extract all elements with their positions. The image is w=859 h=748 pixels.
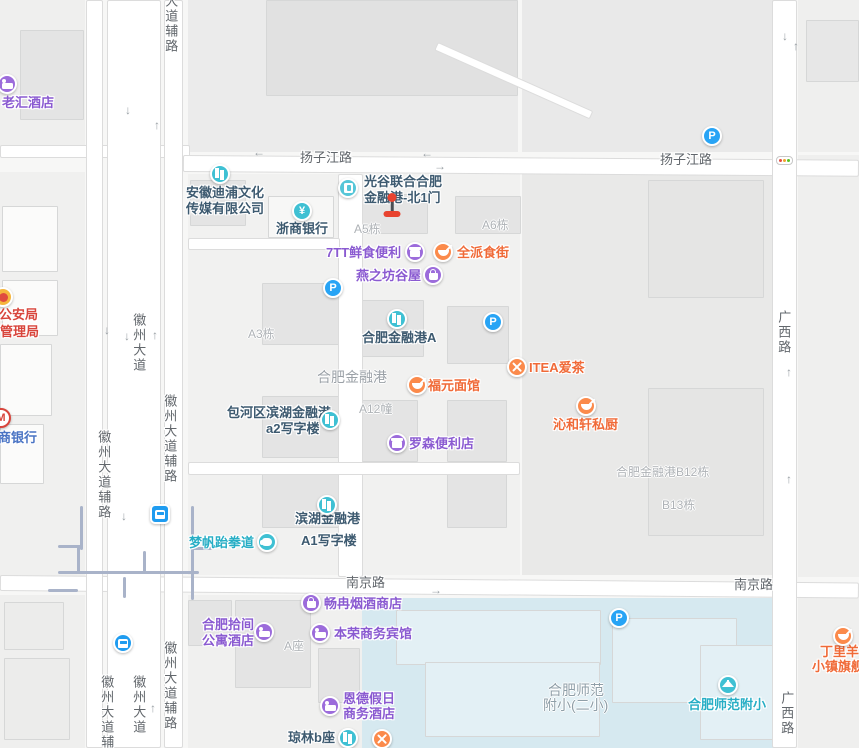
dipu-media-label[interactable]: 传媒有限公司 (186, 202, 264, 217)
building (4, 658, 70, 740)
mengfan-taekwondo-icon[interactable] (257, 532, 277, 552)
finance-port-a-label[interactable]: 合肥金融港A (362, 331, 436, 346)
road-label: 徽州大道辅路 (162, 394, 176, 484)
zheshang-bank-label[interactable]: 浙商银行 (276, 222, 328, 237)
door-glyph (344, 183, 353, 193)
metro-line (143, 551, 146, 573)
map-canvas[interactable]: ↓↑←←→↓↑↓↓↑↑↑↑↓→扬子江路扬子江路南京路南京路徽州大道徽州大道徽州大… (0, 0, 859, 748)
bed-glyph (2, 83, 13, 89)
bus-glyph (118, 639, 128, 648)
road-label: 徽州大道辅路 (99, 675, 113, 748)
building (648, 388, 764, 536)
metro-line (123, 577, 126, 598)
food-glyph (438, 250, 449, 256)
road-label: 扬子江路 (660, 153, 712, 167)
a1-office-label[interactable]: A1写字楼 (301, 534, 357, 549)
finance-port-north-gate1-label[interactable]: 光谷联合合肥 (364, 175, 442, 190)
bowl-glyph (581, 404, 592, 410)
fuyuan-noodle-icon[interactable] (407, 375, 427, 395)
city-block (798, 155, 859, 577)
metro-line (191, 506, 194, 600)
7tt-store-icon[interactable] (405, 242, 425, 262)
marker-gate-bar (384, 211, 401, 217)
direction-arrow: ↓ (782, 30, 788, 42)
finance-port-north-gate1-label[interactable]: 金融港-北1门 (364, 191, 441, 206)
a2-office-label[interactable]: 包河区滨湖金融港 (227, 406, 331, 421)
parking-icon[interactable]: P (702, 126, 722, 146)
road-label: 扬子江路 (300, 151, 352, 165)
city-block (522, 0, 774, 152)
building-label: 合肥金融港B12栋 (616, 463, 709, 480)
metro-line (48, 589, 78, 592)
direction-arrow: ← (253, 146, 265, 158)
lawson-icon[interactable] (387, 433, 407, 453)
road (188, 462, 520, 475)
restaurant-unnamed-icon[interactable] (372, 729, 392, 748)
bag-glyph (429, 273, 438, 280)
ende-holiday-hotel-label[interactable]: 商务酒店 (343, 707, 395, 722)
parking-icon[interactable]: P (483, 312, 503, 332)
shop-glyph (410, 250, 420, 257)
yen-glyph: ¥ (299, 206, 305, 217)
bldg-glyph (392, 313, 396, 323)
bowl-glyph (838, 634, 849, 640)
yanzhifang-label[interactable]: 燕之坊谷屋 (356, 269, 421, 284)
fist-glyph (262, 538, 272, 546)
road-label: 广西路 (776, 310, 790, 355)
itea-label[interactable]: ITEA爱茶 (529, 361, 585, 376)
parking-icon[interactable]: P (323, 278, 343, 298)
road (188, 238, 340, 250)
shijian-apartment-hotel-icon[interactable] (254, 622, 274, 642)
emblem-glyph (0, 293, 8, 302)
road-label: 徽州大道 (131, 313, 145, 373)
dipu-media-label[interactable]: 安徽迪浦文化 (186, 186, 264, 201)
building (447, 400, 507, 462)
dingliyang-label[interactable]: 小镇旗舰 (812, 660, 859, 675)
bowl-glyph (412, 383, 423, 389)
road (86, 0, 103, 748)
road-label: 大道辅路 (163, 0, 177, 54)
building (266, 0, 518, 96)
building-label: A3栋 (248, 325, 275, 342)
building (396, 610, 601, 665)
dingliyang-label[interactable]: 丁里羊 (820, 645, 859, 660)
building-label: A5栋 (354, 220, 381, 237)
selected-gate-marker[interactable] (383, 193, 401, 219)
building (447, 468, 507, 528)
bed-glyph (315, 632, 326, 638)
finance-port-a-icon[interactable] (387, 309, 407, 329)
a2-office-icon[interactable] (320, 410, 340, 430)
dingliyang-icon[interactable] (833, 626, 853, 646)
building (648, 180, 764, 298)
building-label: A12幢 (359, 400, 392, 417)
direction-arrow: → (434, 160, 446, 172)
qionglin-b-label[interactable]: 琼林b座 (288, 731, 335, 746)
qinhexuan-icon[interactable] (576, 396, 596, 416)
ende-holiday-hotel-icon[interactable] (320, 696, 340, 716)
road (164, 0, 183, 748)
ut-glyph (511, 361, 523, 373)
bldg-glyph (215, 168, 219, 178)
7tt-store-label[interactable]: 7TT鲜食便利 (326, 246, 401, 261)
building-label: B13栋 (662, 496, 695, 513)
mengfan-taekwondo-label[interactable]: 梦帆跆拳道 (189, 536, 254, 551)
road-label: 徽州大道辅路 (162, 641, 176, 731)
shop-glyph (392, 441, 402, 448)
lawson-label[interactable]: 罗森便利店 (409, 437, 474, 452)
direction-arrow: ↑ (786, 473, 792, 485)
bag-glyph (307, 601, 316, 608)
road-label: 徽州大道辅路 (96, 430, 110, 520)
road-label: 广西路 (779, 691, 793, 736)
direction-arrow: ↓ (104, 324, 110, 336)
traffic-light-icon (776, 156, 793, 165)
direction-arrow: ↓ (124, 330, 130, 342)
direction-arrow: ↑ (150, 702, 156, 714)
a1-office-icon[interactable] (317, 495, 337, 515)
direction-arrow: ↓ (121, 510, 127, 522)
marker-dot (388, 193, 397, 202)
ende-holiday-hotel-label[interactable]: 恩德假日 (343, 692, 395, 707)
dipu-media-icon[interactable] (210, 164, 230, 184)
shijian-apartment-hotel-label[interactable]: 合肥拾间 (202, 618, 254, 633)
road (772, 0, 797, 748)
quanpai-food-street-label[interactable]: 全派食街 (457, 246, 509, 261)
quanpai-food-street-icon[interactable] (433, 242, 453, 262)
metro-entrance-icon[interactable] (150, 504, 170, 524)
mbank-glyph: M (0, 413, 6, 424)
bed-glyph (325, 705, 336, 711)
yanzhifang-icon[interactable] (423, 265, 443, 285)
building-label: A6栋 (482, 216, 509, 233)
direction-arrow: ↑ (154, 119, 160, 131)
zheshang-bank-icon[interactable]: ¥ (292, 201, 312, 221)
bus-stop-icon[interactable] (113, 633, 133, 653)
qinhexuan-label[interactable]: 沁和轩私厨 (553, 418, 618, 433)
itea-icon[interactable] (507, 357, 527, 377)
metro-line (80, 506, 83, 550)
road-label: 南京路 (734, 578, 773, 592)
merchants-bank-label[interactable]: 商银行 (0, 431, 37, 446)
fuyuan-noodle-label[interactable]: 福元面馆 (428, 379, 480, 394)
direction-arrow: → (430, 584, 442, 596)
laohui-hotel-label[interactable]: 老汇酒店 (2, 96, 54, 111)
changran-tobacco-label[interactable]: 畅冉烟酒商店 (324, 597, 402, 612)
building (2, 206, 58, 272)
parking-glyph: P (489, 317, 496, 328)
ut-glyph (376, 733, 388, 745)
building-label: A座 (284, 637, 304, 654)
direction-arrow: ↓ (125, 104, 131, 116)
building-label: 合肥金融港 (317, 367, 387, 387)
bus-glyph (155, 510, 165, 519)
normal-primary-school-label[interactable]: 合肥师范附小 (688, 698, 766, 713)
building (806, 20, 859, 82)
school-glyph (722, 680, 734, 687)
shijian-apartment-hotel-label[interactable]: 公寓酒店 (202, 634, 254, 649)
changran-tobacco-icon[interactable] (301, 593, 321, 613)
building (0, 344, 52, 416)
bldg-glyph (322, 499, 326, 509)
bldg-glyph (343, 732, 347, 742)
building (4, 602, 64, 650)
finance-port-north-gate1-icon[interactable] (338, 178, 358, 198)
police-bureau-label[interactable]: 市公安局 (0, 308, 38, 323)
metro-line (58, 571, 199, 574)
a2-office-label[interactable]: a2写字楼 (266, 422, 319, 437)
parking-glyph: P (615, 613, 622, 624)
parking-icon[interactable]: P (609, 608, 629, 628)
qionglin-b-icon[interactable] (338, 728, 358, 748)
parking-glyph: P (329, 283, 336, 294)
direction-arrow: ↑ (793, 40, 799, 52)
benrong-hotel-label[interactable]: 本荣商务宾馆 (334, 627, 412, 642)
bldg-glyph (325, 414, 329, 424)
benrong-hotel-icon[interactable] (310, 623, 330, 643)
direction-arrow: ↑ (786, 366, 792, 378)
direction-arrow: ↑ (152, 329, 158, 341)
direction-arrow: ← (421, 147, 433, 159)
parking-glyph: P (708, 131, 715, 142)
building-label: 附小(二小) (543, 695, 608, 715)
metro-line (77, 547, 80, 574)
road-label: 南京路 (346, 576, 385, 590)
police-bureau-label[interactable]: 管理局 (0, 325, 39, 340)
normal-primary-school-icon[interactable] (718, 675, 738, 695)
bed-glyph (259, 631, 270, 637)
road-label: 徽州大道 (131, 675, 145, 735)
